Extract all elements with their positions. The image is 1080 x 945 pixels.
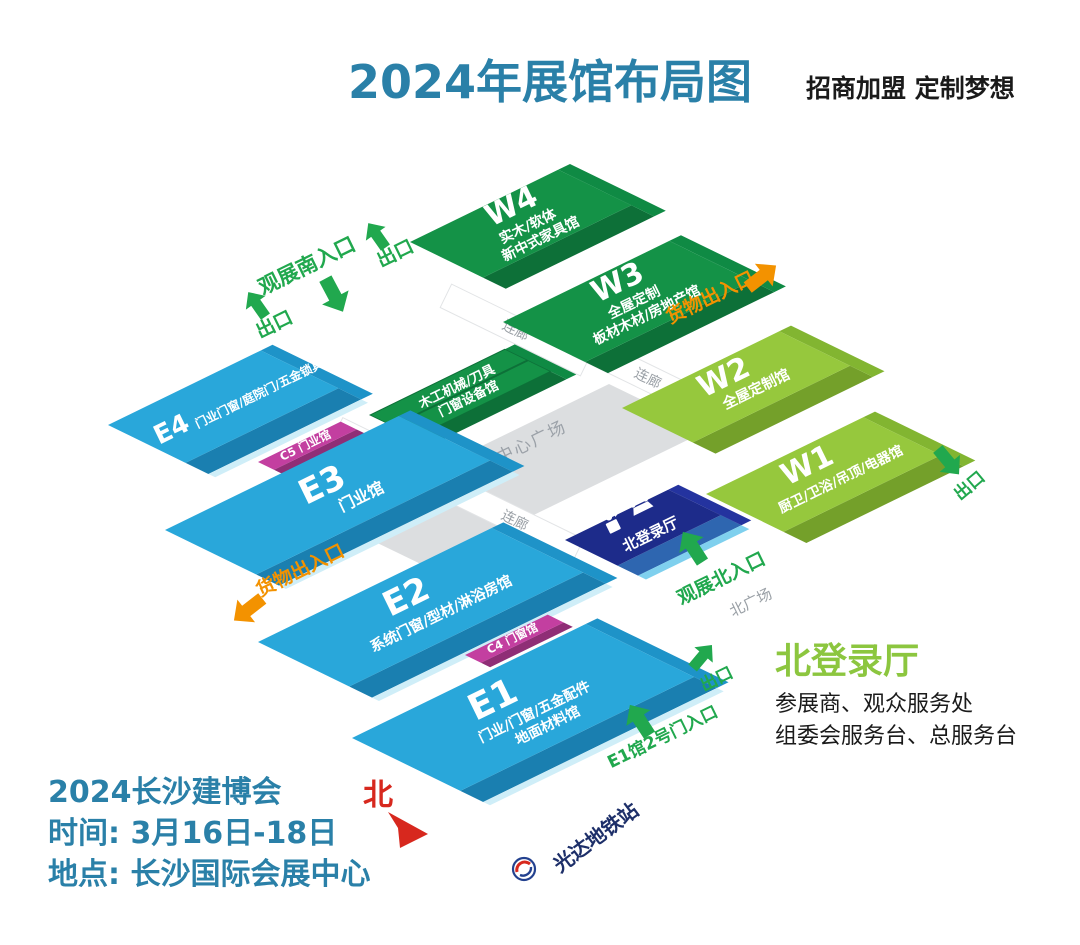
event-name: 2024长沙建博会 — [48, 775, 282, 810]
exhibition-layout-map: 2024年展馆布局图 招商加盟 定制梦想 中心广场 连廊 连廊 连廊 连廊 W4… — [0, 0, 1080, 945]
exit-west-upper: 出口 — [358, 216, 417, 272]
event-dates: 时间: 3月16日-18日 — [48, 816, 337, 851]
registration-legend: 北登录厅 参展商、观众服务处 组委会服务台、总服务台 — [775, 641, 1017, 749]
north-plaza-label: 北广场 — [727, 585, 775, 621]
event-info: 2024长沙建博会 时间: 3月16日-18日 地点: 长沙国际会展中心 — [48, 775, 370, 892]
legend-line1: 参展商、观众服务处 — [775, 692, 973, 717]
metro-station-label: 光达地铁站 — [548, 798, 643, 878]
event-venue: 地点: 长沙国际会展中心 — [48, 857, 370, 892]
compass-north: 北 — [363, 778, 428, 848]
south-entrance-arrow-icon — [312, 272, 356, 319]
metro-logo-icon — [513, 858, 535, 880]
compass-north-arrow-icon — [388, 812, 428, 848]
metro-station: 光达地铁站 — [513, 798, 643, 880]
legend-line2: 组委会服务台、总服务台 — [775, 724, 1017, 749]
slogan-text: 招商加盟 定制梦想 — [806, 74, 1015, 103]
compass-north-label: 北 — [363, 778, 393, 813]
south-entrance-label: 观展南入口 — [254, 232, 359, 300]
page-title: 2024年展馆布局图 — [348, 55, 752, 109]
map-canvas: 2024年展馆布局图 招商加盟 定制梦想 中心广场 连廊 连廊 连廊 连廊 W4… — [0, 0, 1080, 945]
south-entrance: 观展南入口 — [254, 232, 359, 319]
legend-title: 北登录厅 — [775, 641, 919, 682]
